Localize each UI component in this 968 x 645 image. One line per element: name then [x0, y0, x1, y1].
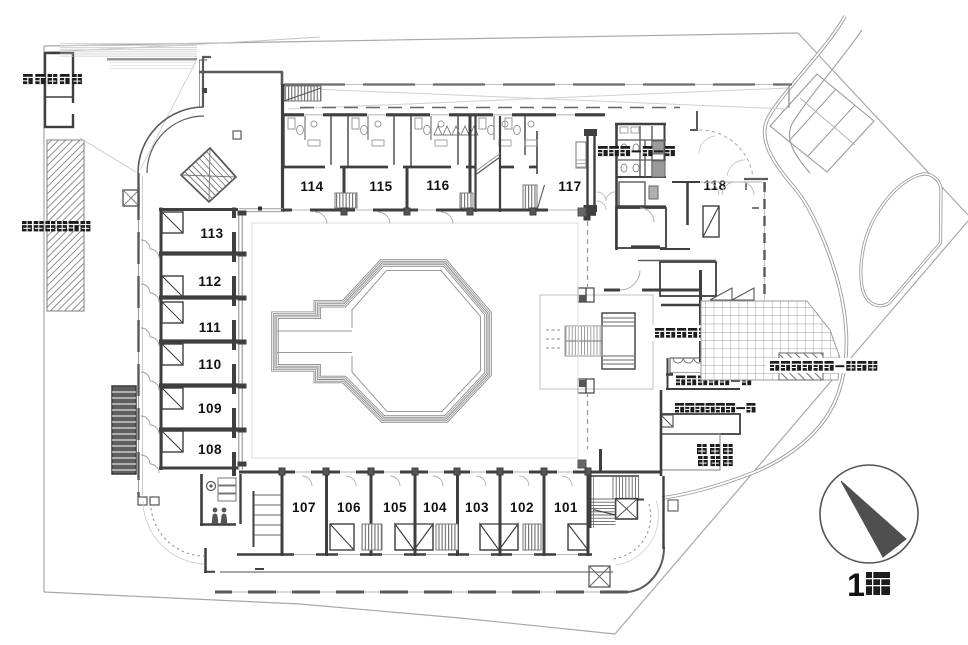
svg-text:105: 105 [383, 500, 407, 515]
svg-text:103: 103 [465, 500, 489, 515]
svg-text:101: 101 [554, 500, 578, 515]
svg-text:117: 117 [558, 179, 581, 194]
svg-text:104: 104 [423, 500, 447, 515]
svg-text:114: 114 [300, 179, 323, 194]
svg-text:113: 113 [200, 226, 223, 241]
svg-text:110: 110 [198, 357, 221, 372]
svg-text:102: 102 [510, 500, 534, 515]
svg-text:107: 107 [292, 500, 316, 515]
svg-text:112: 112 [198, 274, 221, 289]
svg-text:1: 1 [847, 567, 865, 603]
svg-text:108: 108 [198, 442, 222, 457]
svg-text:115: 115 [369, 179, 392, 194]
svg-text:109: 109 [198, 401, 222, 416]
svg-text:106: 106 [337, 500, 361, 515]
svg-text:111: 111 [199, 320, 222, 335]
svg-text:116: 116 [426, 178, 449, 193]
